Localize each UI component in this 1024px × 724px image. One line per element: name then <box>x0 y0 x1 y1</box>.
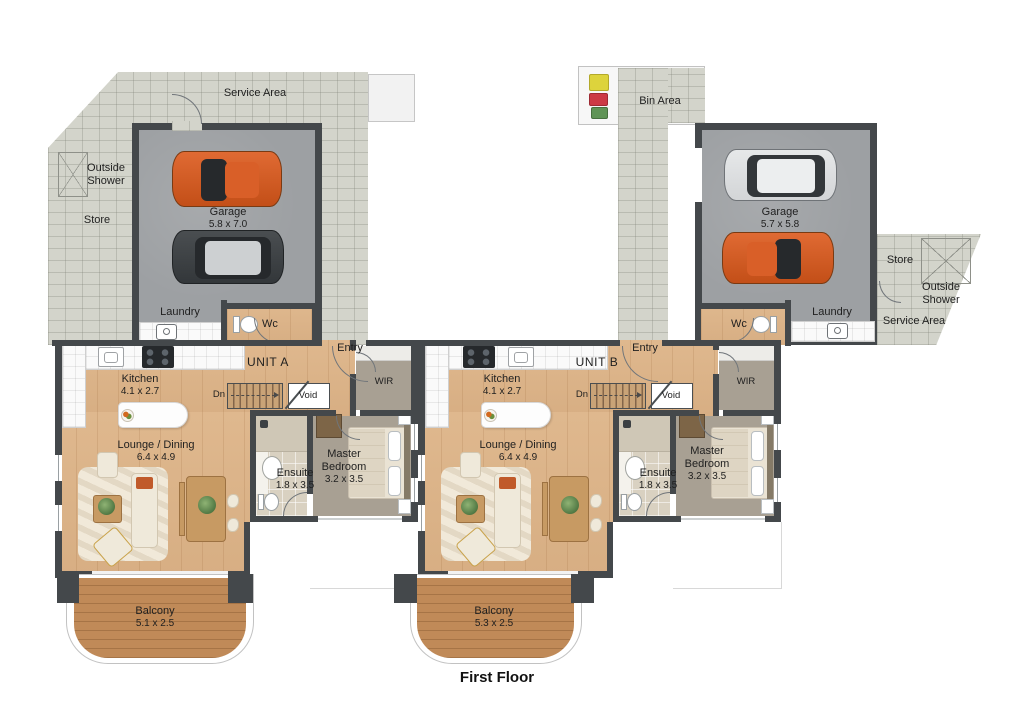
sink-a-basin <box>104 352 118 363</box>
nightstand-icon <box>398 499 411 514</box>
wall-segment <box>250 410 256 522</box>
balcony-b-name: Balcony <box>474 605 513 618</box>
wall-segment <box>613 410 699 416</box>
wall-segment <box>360 410 418 416</box>
toilet-ensuite-a-bowl <box>264 493 279 511</box>
garage-b-dims: 5.7 x 5.8 <box>761 219 799 231</box>
floor-title: First Floor <box>460 669 534 686</box>
walkway-b-paving <box>618 68 668 345</box>
orange-car-b-roof <box>747 242 777 276</box>
pillow-icon <box>388 466 401 496</box>
laundry-b-label: Laundry <box>812 306 852 319</box>
service-area-b-label: Service Area <box>883 315 945 328</box>
fruit-bowl-a-icon <box>121 409 134 422</box>
orange-car-glass <box>201 159 227 201</box>
washer-b-icon <box>827 323 848 339</box>
lounge-b-label: Lounge / Dining 6.4 x 4.9 <box>479 439 556 464</box>
service-pad-a <box>368 74 415 122</box>
sink-b-basin <box>514 352 528 363</box>
pillow-icon <box>388 431 401 461</box>
bed-b-headboard <box>767 425 773 501</box>
balcony-b-label: Balcony 5.3 x 2.5 <box>474 605 513 630</box>
bin-red-icon <box>589 93 608 106</box>
dining-chair-icon <box>227 518 239 532</box>
dark-suv-icon <box>172 230 284 284</box>
balcony-pier <box>571 574 594 603</box>
armchair-icon <box>97 452 118 478</box>
wall-segment <box>695 303 791 309</box>
plant-icon <box>98 498 115 515</box>
dining-chair-icon <box>227 494 239 508</box>
orange-car-b-glass <box>775 239 801 279</box>
kitchen-a-pantry <box>62 344 86 428</box>
dark-suv-roof <box>205 241 261 275</box>
lower-floor-outline <box>673 522 782 589</box>
void-b-label: Void <box>662 391 681 402</box>
wall-segment <box>713 340 719 350</box>
stairs-a-arrow <box>231 395 275 396</box>
wall-segment <box>221 303 318 309</box>
cooktop-b-icon <box>463 346 495 368</box>
lounge-b-name: Lounge / Dining <box>479 439 556 452</box>
orange-car-roof <box>225 162 259 198</box>
window <box>411 478 418 502</box>
plant-icon <box>561 496 579 514</box>
master-a-label: Master Bedroom 3.2 x 3.5 <box>309 448 379 486</box>
stairs-b-arrowhead-icon <box>637 392 642 398</box>
plant-icon <box>461 498 478 515</box>
washer-b-door <box>834 327 841 334</box>
balcony-a-dims: 5.1 x 2.5 <box>135 618 174 630</box>
bin-yellow-icon <box>589 74 609 91</box>
silver-suv-icon <box>724 149 837 201</box>
bed-a-headboard <box>404 425 410 501</box>
lounge-a-label: Lounge / Dining 6.4 x 4.9 <box>117 439 194 464</box>
store-a-label: Store <box>84 214 110 227</box>
wc-a-label: Wc <box>262 318 278 331</box>
armchair-icon <box>460 452 481 478</box>
kitchen-a-dims: 4.1 x 2.7 <box>121 386 159 398</box>
stairs-b-arrow <box>594 395 638 396</box>
shower-a-head-icon <box>260 420 268 428</box>
sink-b-icon <box>508 347 534 367</box>
wall-segment <box>662 340 781 346</box>
wall-segment <box>52 340 322 346</box>
balcony-pier <box>394 574 417 603</box>
wall-segment <box>312 303 318 345</box>
kitchen-b-label: Kitchen 4.1 x 2.7 <box>483 373 521 398</box>
toilet-b-icon <box>770 316 777 333</box>
plant-icon <box>198 496 216 514</box>
lounge-b-dims: 6.4 x 4.9 <box>479 452 556 464</box>
throw-blanket-icon <box>136 477 153 489</box>
sink-a-icon <box>98 347 124 367</box>
balcony-a-name: Balcony <box>135 605 174 618</box>
garage-b-side-gap <box>695 148 702 202</box>
entry-a-label: Entry <box>337 342 363 355</box>
shower-b-head-icon <box>623 420 631 428</box>
wall-segment <box>350 374 356 416</box>
wall-segment <box>250 410 336 416</box>
outside-shower-a-label: Outside Shower <box>75 162 137 187</box>
lounge-a-name: Lounge / Dining <box>117 439 194 452</box>
toilet-a-icon <box>233 316 240 333</box>
wir-b-label: WIR <box>737 377 755 388</box>
bin-area-label: Bin Area <box>639 95 681 108</box>
wall-segment <box>415 340 620 346</box>
orange-car-icon <box>172 151 282 207</box>
unit-a-title: UNIT A <box>247 356 289 370</box>
master-b-dims: 3.2 x 3.5 <box>672 471 742 483</box>
toilet-ensuite-b-bowl <box>627 493 642 511</box>
master-b-name: Master Bedroom <box>672 445 742 471</box>
entry-b-label: Entry <box>632 342 658 355</box>
wir-a-label: WIR <box>375 377 393 388</box>
pillow-icon <box>751 431 764 461</box>
throw-blanket-icon <box>499 477 516 489</box>
dining-bench-icon <box>542 482 548 536</box>
cooktop-a-icon <box>142 346 174 368</box>
wall-segment <box>723 410 781 416</box>
wall-segment <box>244 522 250 571</box>
laundry-a-label: Laundry <box>160 306 200 319</box>
bin-green-icon <box>591 107 608 119</box>
service-area-a-label: Service Area <box>224 87 286 100</box>
master-b-label: Master Bedroom 3.2 x 3.5 <box>672 445 742 483</box>
garage-b-name: Garage <box>761 206 799 219</box>
void-a-label: Void <box>299 391 318 402</box>
master-a-dims: 3.2 x 3.5 <box>309 474 379 486</box>
floor-plan: Service Area Outside Shower Store Garage… <box>0 0 1024 724</box>
wc-b-label: Wc <box>731 318 747 331</box>
window <box>55 505 62 531</box>
stairs-a-arrowhead-icon <box>274 392 279 398</box>
balcony-a-label: Balcony 5.1 x 2.5 <box>135 605 174 630</box>
orange-car-b-icon <box>722 232 834 284</box>
fruit-bowl-b-icon <box>484 409 497 422</box>
kitchen-a-label: Kitchen 4.1 x 2.7 <box>121 373 159 398</box>
pillow-icon <box>751 466 764 496</box>
washer-a-icon <box>156 324 177 340</box>
unit-b-title: UNIT B <box>576 356 619 370</box>
wall-segment <box>713 374 719 416</box>
dn-b-label: Dn <box>576 390 588 401</box>
lounge-a-dims: 6.4 x 4.9 <box>117 452 194 464</box>
garage-a-dims: 5.8 x 7.0 <box>209 219 247 231</box>
balcony-b-dims: 5.3 x 2.5 <box>474 618 513 630</box>
window <box>418 505 425 531</box>
balcony-pier <box>228 574 253 603</box>
window <box>411 424 418 450</box>
window <box>55 455 62 481</box>
garage-a-name: Garage <box>209 206 247 219</box>
silver-suv-roof <box>757 159 815 193</box>
master-a-name: Master Bedroom <box>309 448 379 474</box>
nightstand-icon <box>761 499 774 514</box>
balcony-pier <box>57 574 79 603</box>
window <box>774 424 781 450</box>
garage-a-label: Garage 5.8 x 7.0 <box>209 206 247 231</box>
wall-segment <box>613 410 619 522</box>
outside-shower-b-label: Outside Shower <box>910 281 972 306</box>
garage-b-label: Garage 5.7 x 5.8 <box>761 206 799 231</box>
kitchen-a-name: Kitchen <box>121 373 159 386</box>
dining-chair-icon <box>590 494 602 508</box>
dn-a-label: Dn <box>213 390 225 401</box>
window <box>774 478 781 502</box>
kitchen-b-name: Kitchen <box>483 373 521 386</box>
dining-bench-icon <box>179 482 185 536</box>
washer-a-door <box>163 328 170 335</box>
kitchen-b-pantry <box>425 344 449 428</box>
toilet-b-bowl <box>752 316 770 333</box>
outside-shower-tray-b-icon <box>921 238 971 284</box>
dining-chair-icon <box>590 518 602 532</box>
window <box>418 455 425 481</box>
wall-segment <box>607 522 613 571</box>
kitchen-b-dims: 4.1 x 2.7 <box>483 386 521 398</box>
store-b-label: Store <box>887 254 913 267</box>
